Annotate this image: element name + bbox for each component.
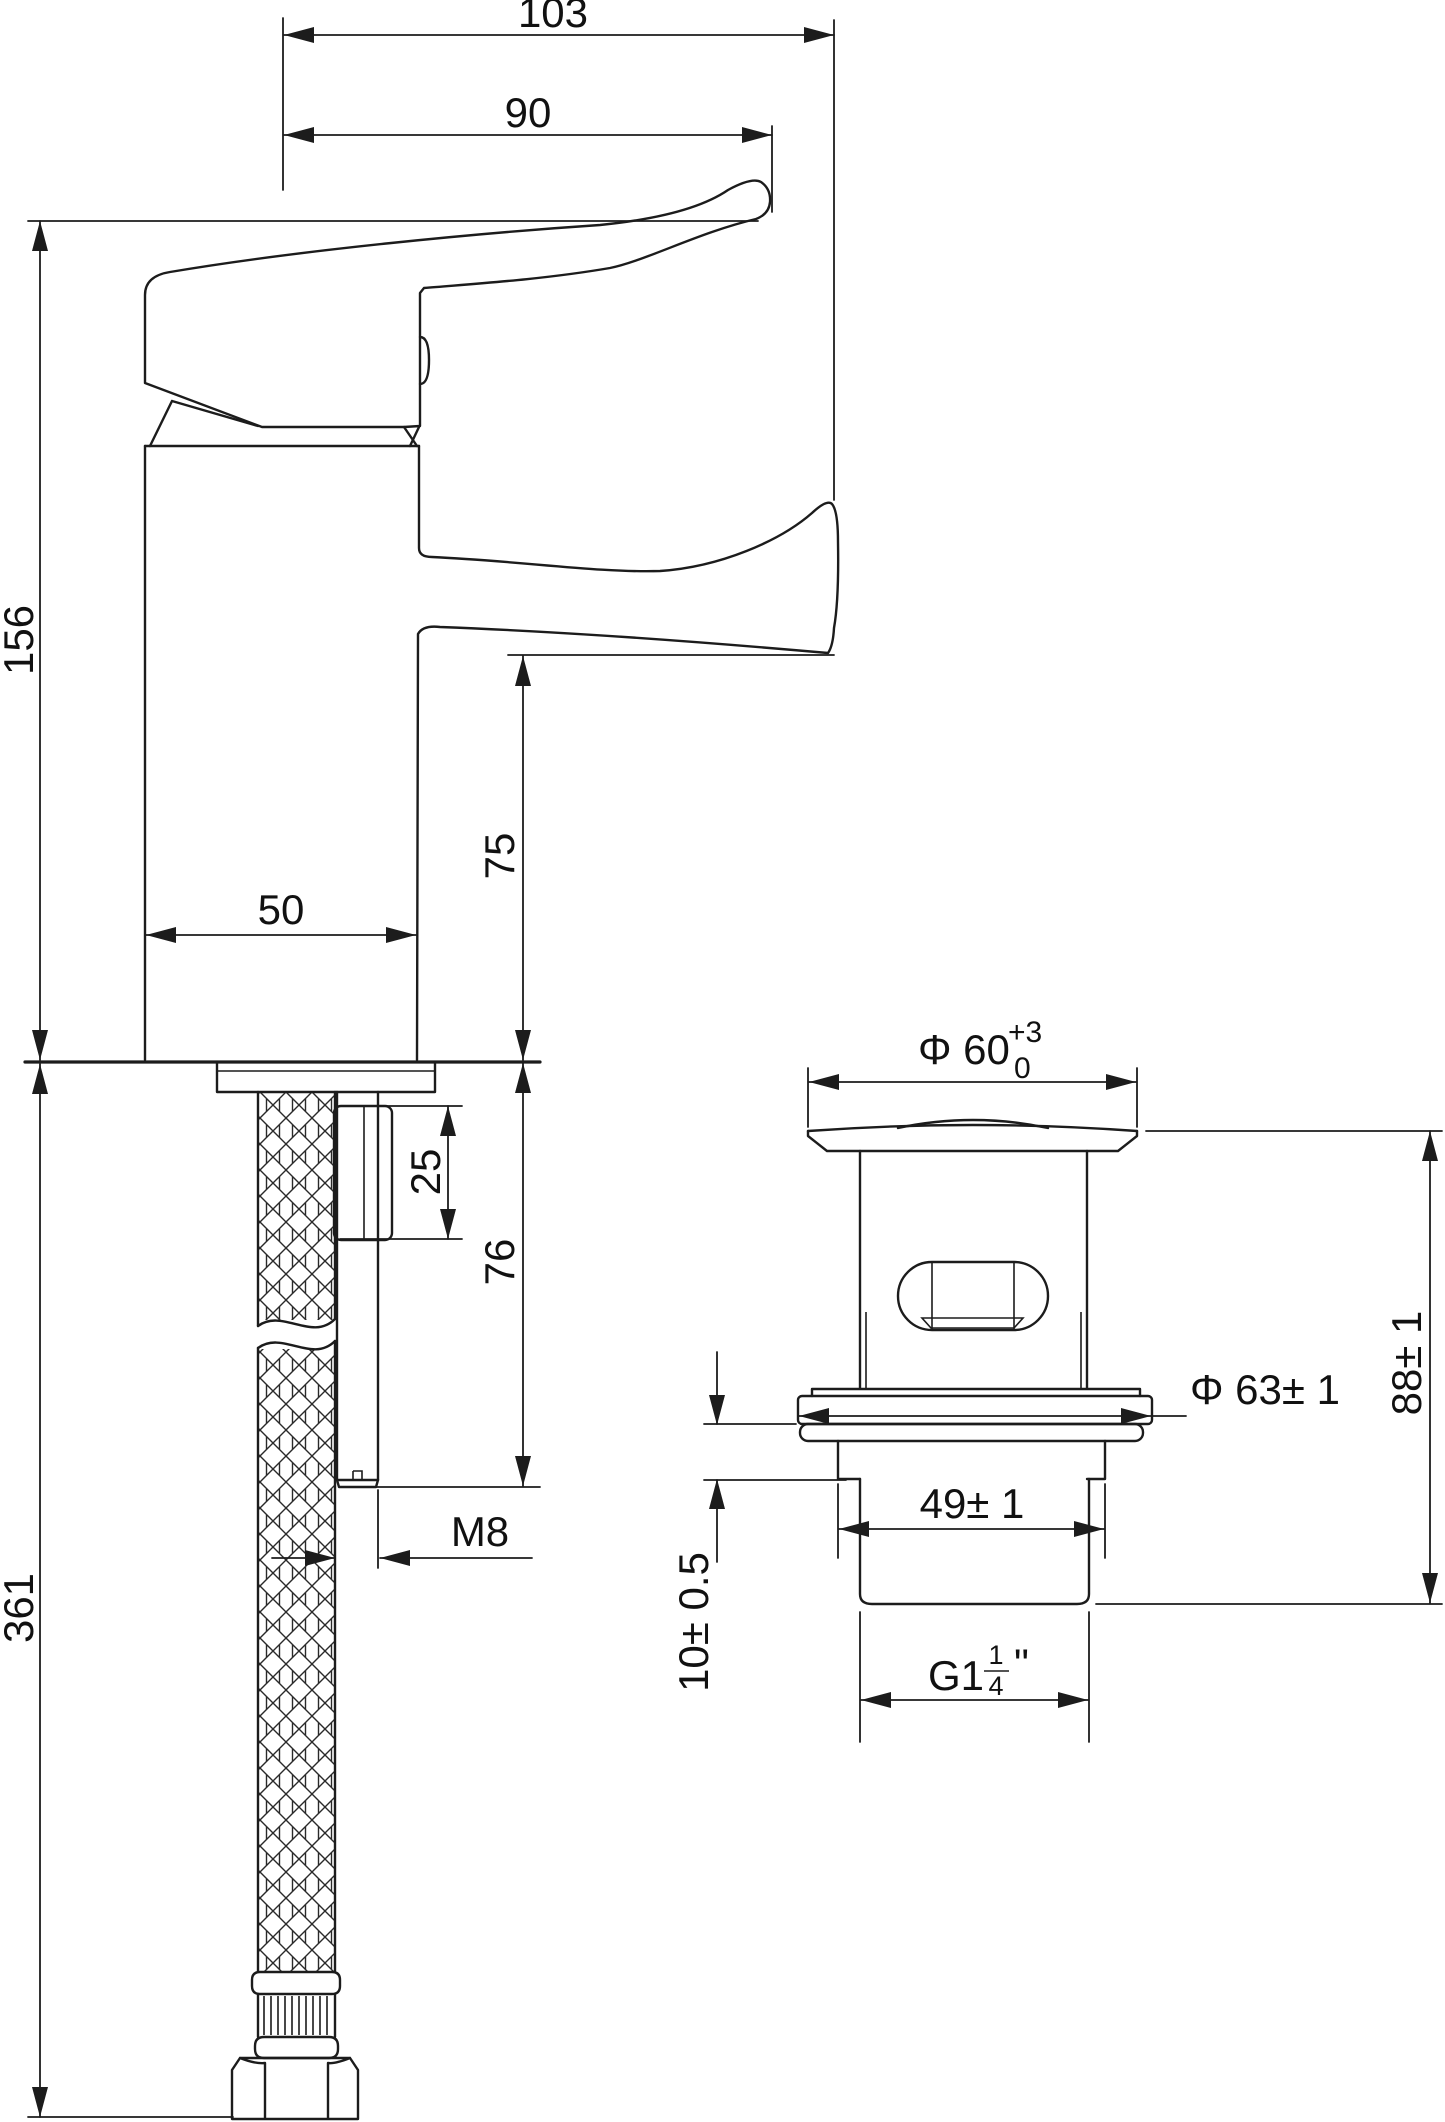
dim-25: 25 [340, 1106, 462, 1239]
dim-dia63-arrow-right [1121, 1408, 1151, 1424]
hose-crimp-knurl [264, 1996, 327, 2035]
dim-g114: G1 1 4 " [860, 1612, 1089, 1742]
dim-g114-label-prefix: G1 [928, 1652, 984, 1699]
overflow-slot-inner-edges [932, 1262, 1014, 1330]
dim-156-arrow-bottom [32, 1030, 48, 1060]
waste-disc [798, 1396, 1152, 1424]
dim-88-arrow-bottom [1422, 1573, 1438, 1603]
dim-76-label: 76 [476, 1239, 523, 1286]
hose-hex-nut [232, 2058, 358, 2119]
dim-361-label: 361 [0, 1573, 42, 1643]
dim-76-arrow-top [515, 1063, 531, 1093]
overflow-slot-outline [898, 1262, 1048, 1330]
waste-flange [808, 1120, 1137, 1151]
dim-361-arrow-top [32, 1064, 48, 1094]
dim-g114-frac-denominator: 4 [988, 1671, 1003, 1701]
drawing-sheet: 103 90 156 75 50 [0, 0, 1445, 2122]
mounting-clamp [334, 1106, 392, 1240]
dim-75: 75 [476, 655, 834, 1060]
flange-top-arc [808, 1125, 1137, 1131]
dim-50: 50 [146, 886, 416, 943]
dim-m8-label: M8 [451, 1508, 509, 1555]
dim-g114-arrow-right [1058, 1692, 1088, 1708]
waste-body-step-lines [866, 1312, 1081, 1388]
dim-90-arrow-right [742, 127, 772, 143]
dim-dia60-extensions [808, 1068, 1137, 1127]
dim-dia60-label: Φ 60 [918, 1026, 1010, 1073]
dim-49-label: 49± 1 [920, 1480, 1025, 1527]
dim-g114-frac-numerator: 1 [988, 1640, 1003, 1670]
dim-156-label: 156 [0, 605, 42, 675]
dim-10-arrow-lower [709, 1479, 725, 1509]
dim-88-label: 88± 1 [1383, 1311, 1430, 1416]
dim-76-arrow-bottom [515, 1456, 531, 1486]
waste-gasket [800, 1424, 1143, 1441]
dim-49-arrow-left [839, 1521, 869, 1537]
dim-50-arrow-right [386, 927, 416, 943]
hose-crimp-section [258, 1994, 335, 2037]
waste-shoulder [838, 1441, 1105, 1479]
hose-braid-lower [259, 1349, 334, 1972]
dim-103-label: 103 [518, 0, 588, 36]
dim-90: 90 [284, 89, 772, 212]
dim-103: 103 [283, 0, 834, 500]
dim-10-label: 10± 0.5 [670, 1552, 717, 1692]
hose-braid-upper [259, 1093, 334, 1320]
flange-sides [808, 1131, 1137, 1151]
dim-dia63-arrow-left [799, 1408, 829, 1424]
dim-156-arrow-top [32, 221, 48, 251]
cartridge-cap-left-slants [150, 401, 258, 446]
indicator-pill [420, 337, 429, 384]
hose-crimp-outline [258, 1994, 335, 2037]
dim-g114-label-suffix: " [1014, 1640, 1029, 1687]
dim-88-arrow-top [1422, 1131, 1438, 1161]
dim-g114-arrow-left [861, 1692, 891, 1708]
waste-body-tube [860, 1151, 1087, 1388]
dim-dia60: Φ 60 +3 0 [808, 1016, 1137, 1127]
supply-hose [232, 1092, 358, 2119]
dim-dia60-arrow-right [1106, 1074, 1136, 1090]
dim-25-arrow-bottom [440, 1209, 456, 1239]
dim-dia63-label: Φ 63± 1 [1190, 1366, 1340, 1413]
hose-break-symbol [258, 1319, 335, 1349]
dim-49: 49± 1 [838, 1480, 1105, 1558]
clamp-body [334, 1106, 392, 1240]
mounting-rod [337, 1092, 378, 1487]
dim-103-arrow-right [804, 27, 834, 43]
technical-drawing-canvas: 103 90 156 75 50 [0, 0, 1445, 2122]
dim-dia60-arrow-left [809, 1074, 839, 1090]
rod-bottom-notch [353, 1471, 362, 1480]
dim-m8-arrow-right [380, 1550, 410, 1566]
dim-50-arrow-left [146, 927, 176, 943]
faucet-side-view: 103 90 156 75 50 [0, 0, 838, 2119]
dim-10: 10± 0.5 [670, 1352, 846, 1692]
dim-75-label: 75 [476, 833, 523, 880]
dim-90-arrow-left [284, 127, 314, 143]
dim-10-extensions [704, 1424, 846, 1480]
dim-dia60-tol-lower: 0 [1014, 1052, 1031, 1085]
hose-ferrule [252, 1972, 340, 1994]
overflow-slot [898, 1262, 1048, 1330]
spout-and-body-right [417, 446, 838, 1060]
lever-handle-outline [145, 181, 770, 427]
rod-bottom [337, 1480, 378, 1487]
overflow-slot-tray [922, 1318, 1023, 1328]
rod-edges [337, 1092, 378, 1480]
dim-25-label: 25 [402, 1149, 449, 1196]
pop-up-waste-front-view: Φ 60 +3 0 88± 1 Φ 63± 1 49± 1 [670, 1016, 1442, 1742]
dim-103-arrow-left [284, 27, 314, 43]
dim-361-arrow-bottom [32, 2087, 48, 2117]
hose-collar [255, 2037, 338, 2058]
dim-dia60-tol-upper: +3 [1008, 1016, 1042, 1049]
base-plate [217, 1062, 435, 1092]
dim-75-arrow-top [515, 656, 531, 686]
dim-50-label: 50 [258, 886, 305, 933]
dim-90-label: 90 [505, 89, 552, 136]
cartridge-cap-right-slants [404, 427, 419, 446]
dim-25-arrow-top [440, 1106, 456, 1136]
dim-10-arrow-upper [709, 1395, 725, 1425]
dim-361: 361 [0, 1064, 233, 2117]
dim-75-arrow-bottom [515, 1030, 531, 1060]
